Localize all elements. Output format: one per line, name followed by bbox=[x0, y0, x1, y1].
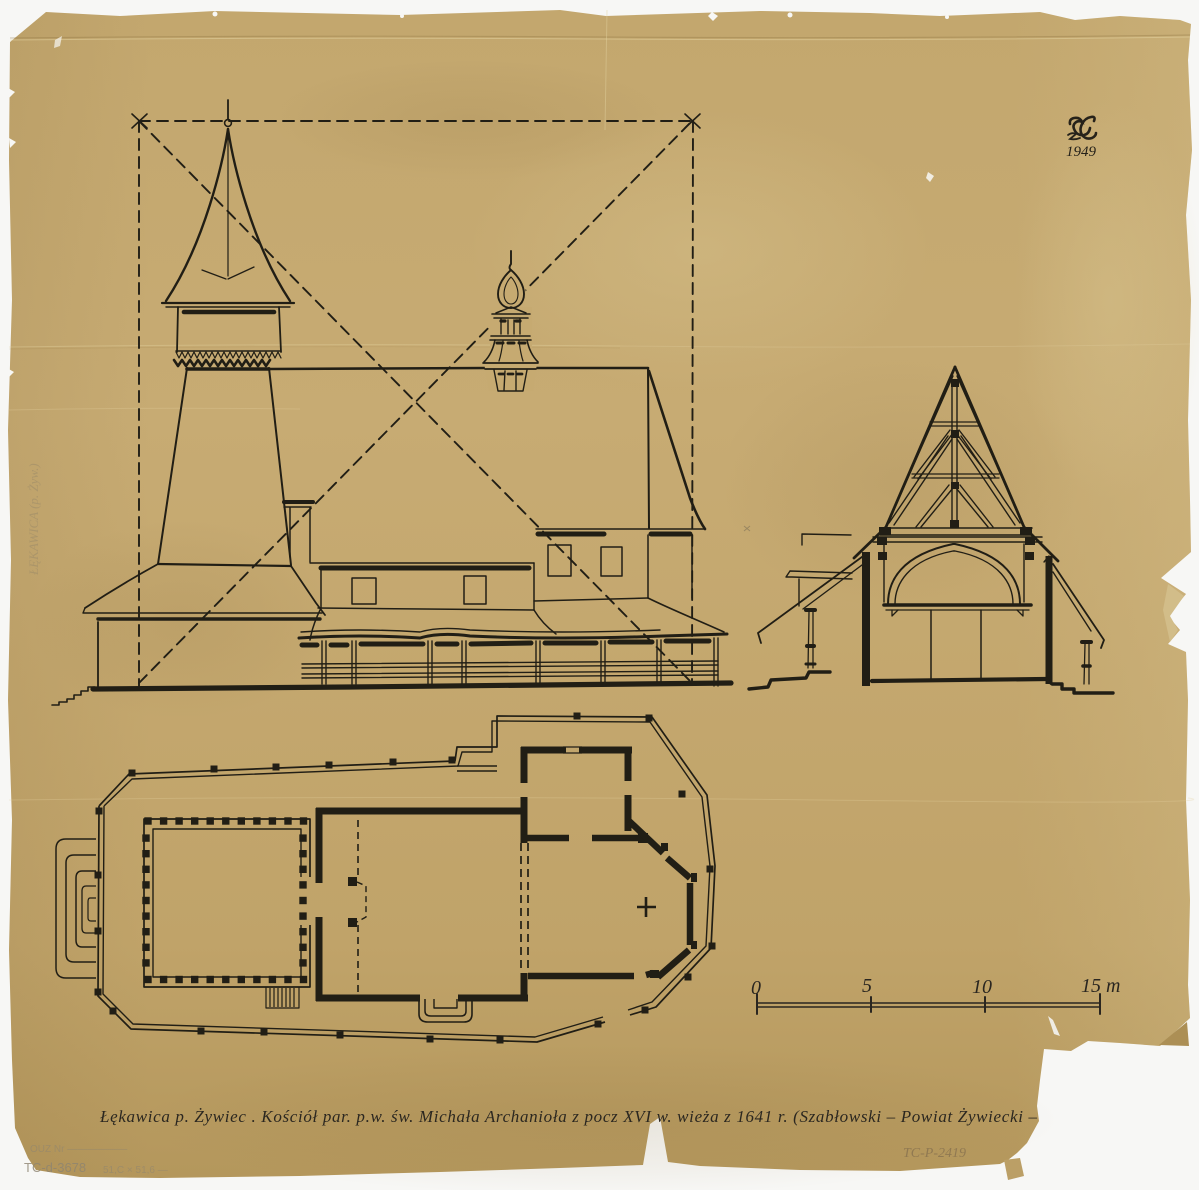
svg-text:51,C × 51,6 —: 51,C × 51,6 — bbox=[103, 1165, 168, 1176]
svg-text:1949: 1949 bbox=[1066, 144, 1097, 160]
svg-text:ТC-P-2419: ТC-P-2419 bbox=[903, 1146, 966, 1161]
svg-text:Łękawica p. Żywiec . Kościół p: Łękawica p. Żywiec . Kościół par. p.w. ś… bbox=[99, 1107, 1038, 1126]
svg-text:5: 5 bbox=[862, 975, 872, 997]
svg-text:15 m: 15 m bbox=[1081, 975, 1120, 997]
svg-text:ŁĘKAWICA (p. Żyw.): ŁĘKAWICA (p. Żyw.) bbox=[26, 463, 41, 576]
svg-text:OUZ Nr ——————: OUZ Nr —————— bbox=[30, 1144, 127, 1155]
svg-text:0: 0 bbox=[751, 977, 761, 999]
svg-text:TC-d-3678: TC-d-3678 bbox=[24, 1160, 86, 1175]
svg-text:10: 10 bbox=[972, 976, 992, 998]
